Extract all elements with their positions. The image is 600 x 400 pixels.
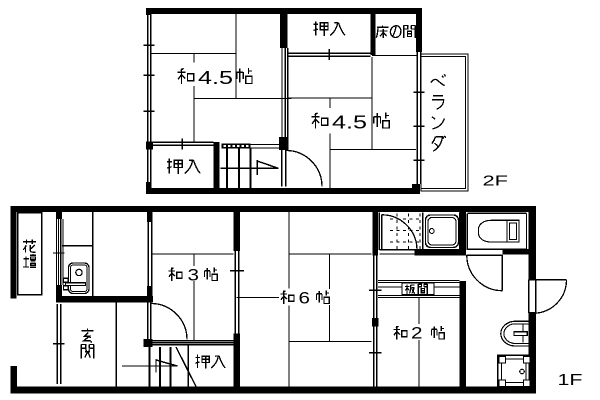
svg-text:1F: 1F [558,372,583,389]
svg-text:2F: 2F [483,173,509,190]
svg-text:3: 3 [188,267,200,285]
svg-text:2: 2 [411,325,423,343]
svg-text:6: 6 [299,290,311,308]
svg-text:4.5: 4.5 [332,112,367,133]
svg-text:4.5: 4.5 [198,67,233,88]
